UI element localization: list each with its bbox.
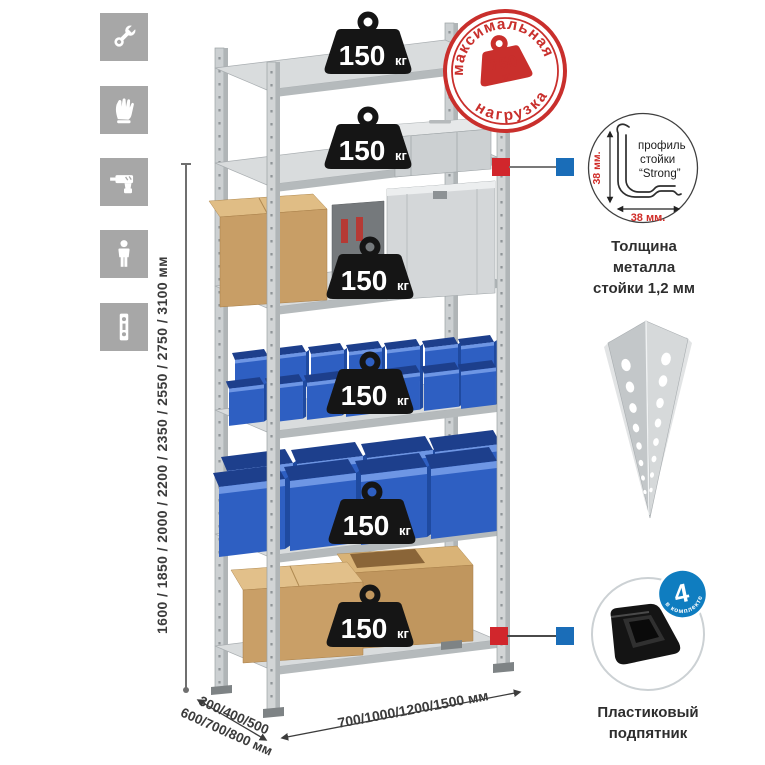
profile-connector-line bbox=[509, 166, 557, 168]
gloves-icon bbox=[108, 94, 140, 126]
foot-connector-line bbox=[507, 635, 557, 637]
weight-handle bbox=[361, 15, 376, 30]
svg-text:150: 150 bbox=[343, 510, 390, 541]
max-load-stamp: максимальная нагрузка 750 кг bbox=[428, 0, 582, 148]
svg-text:150: 150 bbox=[341, 613, 388, 644]
svg-text:кг: кг bbox=[397, 278, 410, 293]
svg-text:кг: кг bbox=[395, 148, 408, 163]
svg-text:кг: кг bbox=[395, 53, 408, 68]
tool-tile-level bbox=[100, 303, 148, 351]
height-dimension-label: 1600 / 1850 / 2000 / 2200 / 2350 / 2550 … bbox=[150, 195, 174, 695]
shelf-load-weight-6: 150 кг bbox=[318, 584, 422, 659]
svg-text:“Strong”: “Strong” bbox=[639, 168, 681, 180]
profile-horizontal-dim-label: 38 мм. bbox=[631, 212, 666, 224]
svg-text:кг: кг bbox=[399, 523, 412, 538]
level-icon bbox=[108, 311, 140, 343]
foot-marker-blue-square bbox=[556, 627, 574, 645]
svg-text:150: 150 bbox=[339, 135, 386, 166]
shelf-load-weight-2: 150 кг bbox=[316, 106, 420, 181]
product-infographic: 1600 / 1850 / 2000 / 2200 / 2350 / 2550 … bbox=[0, 0, 765, 765]
tool-tile-wrench bbox=[100, 13, 148, 61]
foot-marker-red-square bbox=[490, 627, 508, 645]
tool-tile-drill bbox=[100, 158, 148, 206]
profile-marker-blue-square bbox=[556, 158, 574, 176]
profile-marker-red-square bbox=[492, 158, 510, 176]
shelf-load-weight-3: 150 кг bbox=[318, 236, 422, 311]
wrench-icon bbox=[108, 21, 140, 53]
svg-text:стойки: стойки bbox=[640, 154, 675, 166]
shelf-load-weight-1: 150 кг bbox=[316, 11, 420, 86]
quantity-badge: 4 в комплекте bbox=[650, 562, 715, 631]
svg-text:кг: кг bbox=[397, 393, 410, 408]
tool-tile-person bbox=[100, 230, 148, 278]
shelf-load-weight-5: 150 кг bbox=[320, 481, 424, 556]
person-icon bbox=[108, 238, 140, 270]
foot-caption: Пластиковый подпятник bbox=[583, 702, 713, 744]
shelf-load-weight-4: 150 кг bbox=[318, 351, 422, 426]
profile-vertical-dim-label: 38 мм. bbox=[591, 151, 603, 184]
height-dimension-line bbox=[185, 163, 187, 691]
post-profile-detail: 38 мм. 38 мм. профиль стойки “Strong” bbox=[587, 112, 699, 224]
svg-text:кг: кг bbox=[397, 626, 410, 641]
svg-text:150: 150 bbox=[341, 380, 388, 411]
svg-text:150: 150 bbox=[341, 265, 388, 296]
drill-icon bbox=[108, 166, 140, 198]
svg-text:профиль: профиль bbox=[638, 140, 686, 152]
profile-caption: Толщина металла стойки 1,2 мм bbox=[580, 236, 708, 299]
tool-tile-gloves bbox=[100, 86, 148, 134]
svg-text:150: 150 bbox=[339, 40, 386, 71]
angle-post-image bbox=[600, 315, 696, 525]
